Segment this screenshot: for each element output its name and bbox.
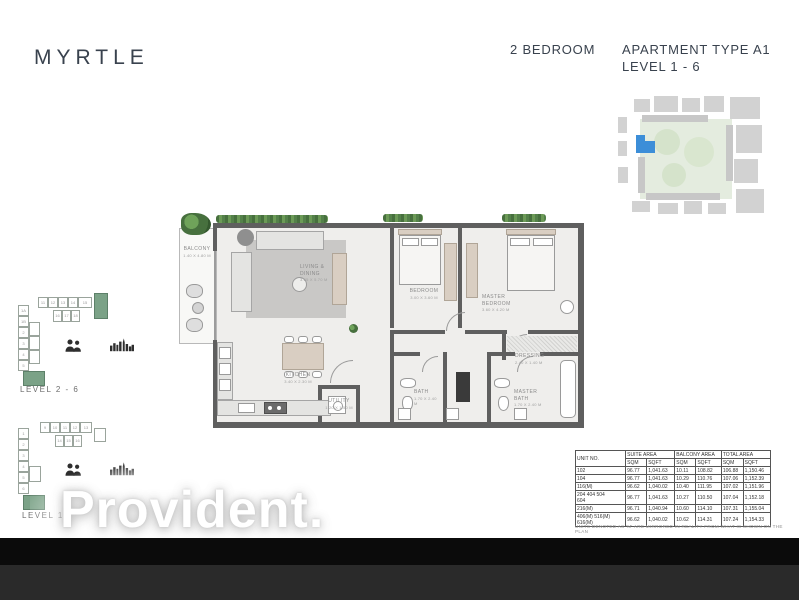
wall	[465, 330, 507, 334]
key-plan-unit: 16	[73, 435, 82, 447]
table-row: 10296.771,041.6310.11108.82106.881,150.4…	[576, 467, 771, 475]
site-block	[634, 99, 650, 112]
balcony-table	[192, 302, 204, 314]
wall	[528, 330, 584, 334]
kitchen-appliance	[219, 363, 231, 375]
balcony-chair	[186, 284, 203, 298]
community-people-icon	[64, 338, 82, 352]
key-plan-unit: 4	[18, 461, 29, 472]
wall	[390, 228, 394, 328]
sofa	[256, 231, 324, 250]
watermark: Provident.	[60, 480, 324, 540]
key-plan-unit: 1B	[18, 316, 29, 327]
wall	[578, 223, 584, 428]
key-plan-highlighted-unit	[94, 293, 108, 319]
table-row: 116(M)96.621,040.0210.40111.95107.021,15…	[576, 483, 771, 491]
wall	[213, 223, 584, 228]
site-block	[618, 141, 627, 156]
site-block	[618, 117, 627, 133]
table-row: 216(M)96.711,040.9410.60114.10107.311,15…	[576, 505, 771, 513]
site-park-tree	[662, 163, 686, 187]
table-subheader: SQFT	[743, 459, 770, 467]
key-plan-unit	[29, 336, 40, 350]
balcony-window	[214, 251, 216, 340]
key-plan-unit: 12	[70, 422, 80, 433]
key-plan-unit: 1	[18, 428, 29, 439]
key-plan-unit: 5	[18, 472, 29, 483]
site-block	[632, 201, 650, 212]
room-label-dressing: DRESSING 2.40 X 1.40 M	[515, 347, 555, 371]
key-plan-unit	[29, 322, 40, 336]
stove	[264, 402, 287, 414]
room-label-bath: BATH 1.70 X 2.40 M	[414, 383, 440, 412]
toilet	[498, 396, 509, 411]
room-label-kitchen: KITCHEN 3.40 X 2.30 M	[276, 366, 320, 390]
ac-unit	[446, 408, 459, 420]
table-row: 204 404 504 60496.771,041.6310.27110.501…	[576, 491, 771, 505]
key-plan-unit: 11	[60, 422, 70, 433]
table-header-unit: UNIT NO.	[576, 451, 626, 467]
wardrobe	[466, 243, 478, 298]
site-block	[736, 189, 764, 213]
key-plan-highlighted-unit	[23, 371, 45, 386]
site-block	[736, 125, 762, 153]
key-plan-unit: 15	[64, 435, 73, 447]
site-block	[684, 201, 702, 214]
area-table: UNIT NO. SUITE AREA BALCONY AREA TOTAL A…	[575, 450, 771, 527]
site-block	[654, 96, 678, 112]
key-plan-unit: 14	[68, 297, 78, 308]
key-plan-unit: 13	[80, 422, 92, 433]
key-plan-unit: 3	[18, 338, 29, 349]
city-skyline-icon	[110, 336, 134, 352]
key-plan-unit: 9	[40, 422, 50, 433]
bottom-letterbox-bar	[0, 565, 799, 600]
dining-chair	[298, 336, 308, 343]
entrance-door	[456, 372, 470, 402]
site-block	[638, 157, 645, 193]
room-label-balcony: BALCONY 1.40 X 4.80 M	[179, 240, 215, 264]
pillow	[510, 238, 530, 246]
room-label-living: LIVING & DINING 3.65 X 5.70 M	[300, 258, 340, 288]
wall	[502, 334, 506, 360]
kitchen-appliance	[219, 347, 231, 359]
table-footnote: UNITS DENOTED AS 'M' ARE MIRRORED IN REA…	[575, 524, 785, 534]
sofa	[231, 252, 252, 312]
key-plan-unit: 18	[71, 310, 80, 322]
key-plan-unit	[29, 350, 40, 364]
key-plan-unit: 4	[18, 349, 29, 360]
ac-unit	[398, 408, 411, 420]
table-subheader: SQM	[675, 459, 696, 467]
room-label-master-bedroom: MASTER BEDROOM 3.60 X 4.20 M	[482, 288, 520, 318]
balcony-chair	[186, 318, 203, 332]
key-plan-unit: 2	[18, 439, 29, 450]
wall	[356, 385, 360, 422]
site-block	[726, 125, 733, 181]
key-plan-unit: 5	[18, 360, 29, 371]
key-plan-label: LEVEL 2 - 6	[20, 385, 79, 394]
table-subheader: SQM	[626, 459, 647, 467]
key-plan-unit: 11	[38, 297, 48, 308]
table-header-total: TOTAL AREA	[721, 451, 770, 459]
table-row: 10496.771,041.6310.29110.76107.061,152.3…	[576, 475, 771, 483]
bottom-letterbox-bar	[0, 538, 799, 565]
table-header-suite: SUITE AREA	[626, 451, 675, 459]
highlighted-building-marker	[636, 141, 655, 153]
site-block	[704, 96, 724, 112]
level-range-label: LEVEL 1 - 6	[622, 59, 700, 74]
key-plan-unit: 3	[18, 450, 29, 461]
hedge-planter	[502, 214, 546, 222]
stool	[560, 300, 574, 314]
table-header-balcony: BALCONY AREA	[675, 451, 722, 459]
room-label-master-bath: MASTER BATH 1.70 X 2.40 M	[514, 383, 544, 413]
site-block	[646, 193, 720, 200]
table-subheader: SQFT	[696, 459, 722, 467]
site-park-tree	[654, 129, 680, 155]
key-plan-unit: 17	[62, 310, 71, 322]
wall	[390, 330, 445, 334]
kitchen-sink	[238, 403, 255, 413]
bedroom-count-label: 2 BEDROOM	[510, 42, 595, 57]
wall	[390, 334, 394, 422]
key-plan-unit: 15	[78, 297, 92, 308]
wall	[318, 385, 360, 389]
site-block	[708, 203, 726, 214]
wall	[213, 422, 584, 428]
key-plan-unit	[94, 428, 106, 442]
balcony-plant	[181, 213, 211, 235]
site-map	[618, 93, 768, 217]
bathroom-sink	[494, 378, 510, 388]
key-plan-unit: 13	[58, 297, 68, 308]
key-plan-unit: 6	[18, 483, 29, 494]
hedge-planter	[216, 215, 328, 223]
dining-chair	[312, 336, 322, 343]
site-block	[682, 98, 700, 112]
site-block	[642, 115, 708, 122]
key-plan-unit: 2	[18, 327, 29, 338]
key-plan-unit: 14	[55, 435, 64, 447]
key-plan-unit: 1A	[18, 305, 29, 316]
table-subheader: SQM	[721, 459, 743, 467]
site-block	[730, 97, 760, 119]
site-park-tree	[684, 137, 714, 167]
dining-chair	[284, 336, 294, 343]
wall	[487, 352, 491, 422]
key-plan-unit: 10	[50, 422, 60, 433]
apartment-type-label: APARTMENT TYPE A1	[622, 42, 770, 57]
brochure-page: MYRTLE 2 BEDROOM APARTMENT TYPE A1 LEVEL…	[0, 0, 799, 600]
pillow	[402, 238, 419, 246]
site-block	[618, 167, 628, 183]
wall	[394, 352, 420, 356]
site-block	[734, 159, 758, 183]
room-label-utility: UTILITY 1.20 X 1.50 M	[322, 392, 356, 416]
indoor-plant	[349, 324, 358, 333]
page-title: MYRTLE	[34, 46, 149, 70]
bathtub	[560, 360, 576, 418]
hedge-planter	[383, 214, 423, 222]
pouf	[237, 229, 254, 246]
room-label-bedroom: BEDROOM 3.00 X 3.60 M	[402, 282, 446, 306]
table-subheader: SQFT	[647, 459, 675, 467]
pillow	[421, 238, 438, 246]
key-plan-unit: 16	[53, 310, 62, 322]
pillow	[533, 238, 553, 246]
site-block	[658, 203, 678, 214]
wall	[487, 352, 515, 356]
kitchen-appliance	[219, 379, 231, 391]
key-plan-unit: 12	[48, 297, 58, 308]
